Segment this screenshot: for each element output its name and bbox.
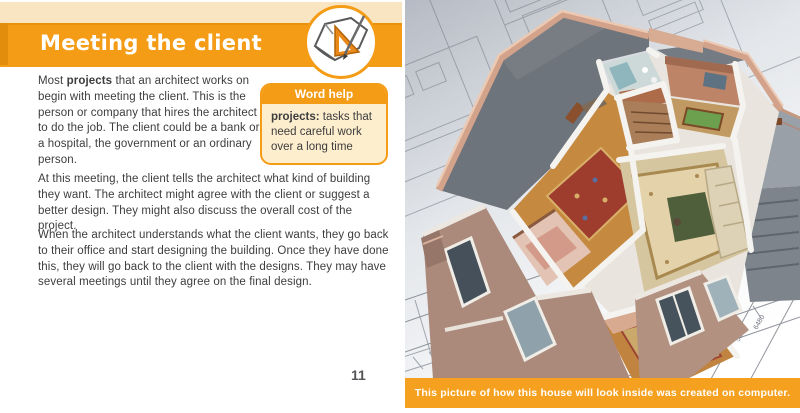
right-book-page: 16200 12490 6400 1520 2300 1650 2100 530… xyxy=(402,0,800,408)
house-cutaway-svg: 16200 12490 6400 1520 2300 1650 2100 530… xyxy=(405,0,800,408)
word-help-title: Word help xyxy=(262,85,386,104)
bold-term-projects: projects xyxy=(67,75,113,87)
word-help-box: Word help projects: tasks that need care… xyxy=(260,83,388,165)
left-book-page: Meeting the client Most projects that an… xyxy=(0,0,402,408)
word-help-term: projects: xyxy=(271,111,320,123)
set-square-icon xyxy=(309,10,373,74)
coffee-table xyxy=(673,218,681,226)
page-title: Meeting the client xyxy=(40,31,262,55)
paragraph-intro-post: that an architect works on begin with me… xyxy=(38,75,260,166)
house-cutaway-illustration: 16200 12490 6400 1520 2300 1650 2100 530… xyxy=(405,0,800,408)
photo-caption: This picture of how this house will look… xyxy=(405,378,800,408)
banner-left-cap xyxy=(0,23,8,65)
page-number: 11 xyxy=(351,367,366,383)
paragraph-designing: When the architect understands what the … xyxy=(38,228,392,291)
paragraph-intro: Most projects that an architect works on… xyxy=(38,74,268,169)
word-help-definition: projects: tasks that need careful work o… xyxy=(262,104,386,163)
paragraph-intro-pre: Most xyxy=(38,75,67,87)
chapter-badge xyxy=(304,5,378,79)
paragraph-meeting: At this meeting, the client tells the ar… xyxy=(38,172,390,235)
